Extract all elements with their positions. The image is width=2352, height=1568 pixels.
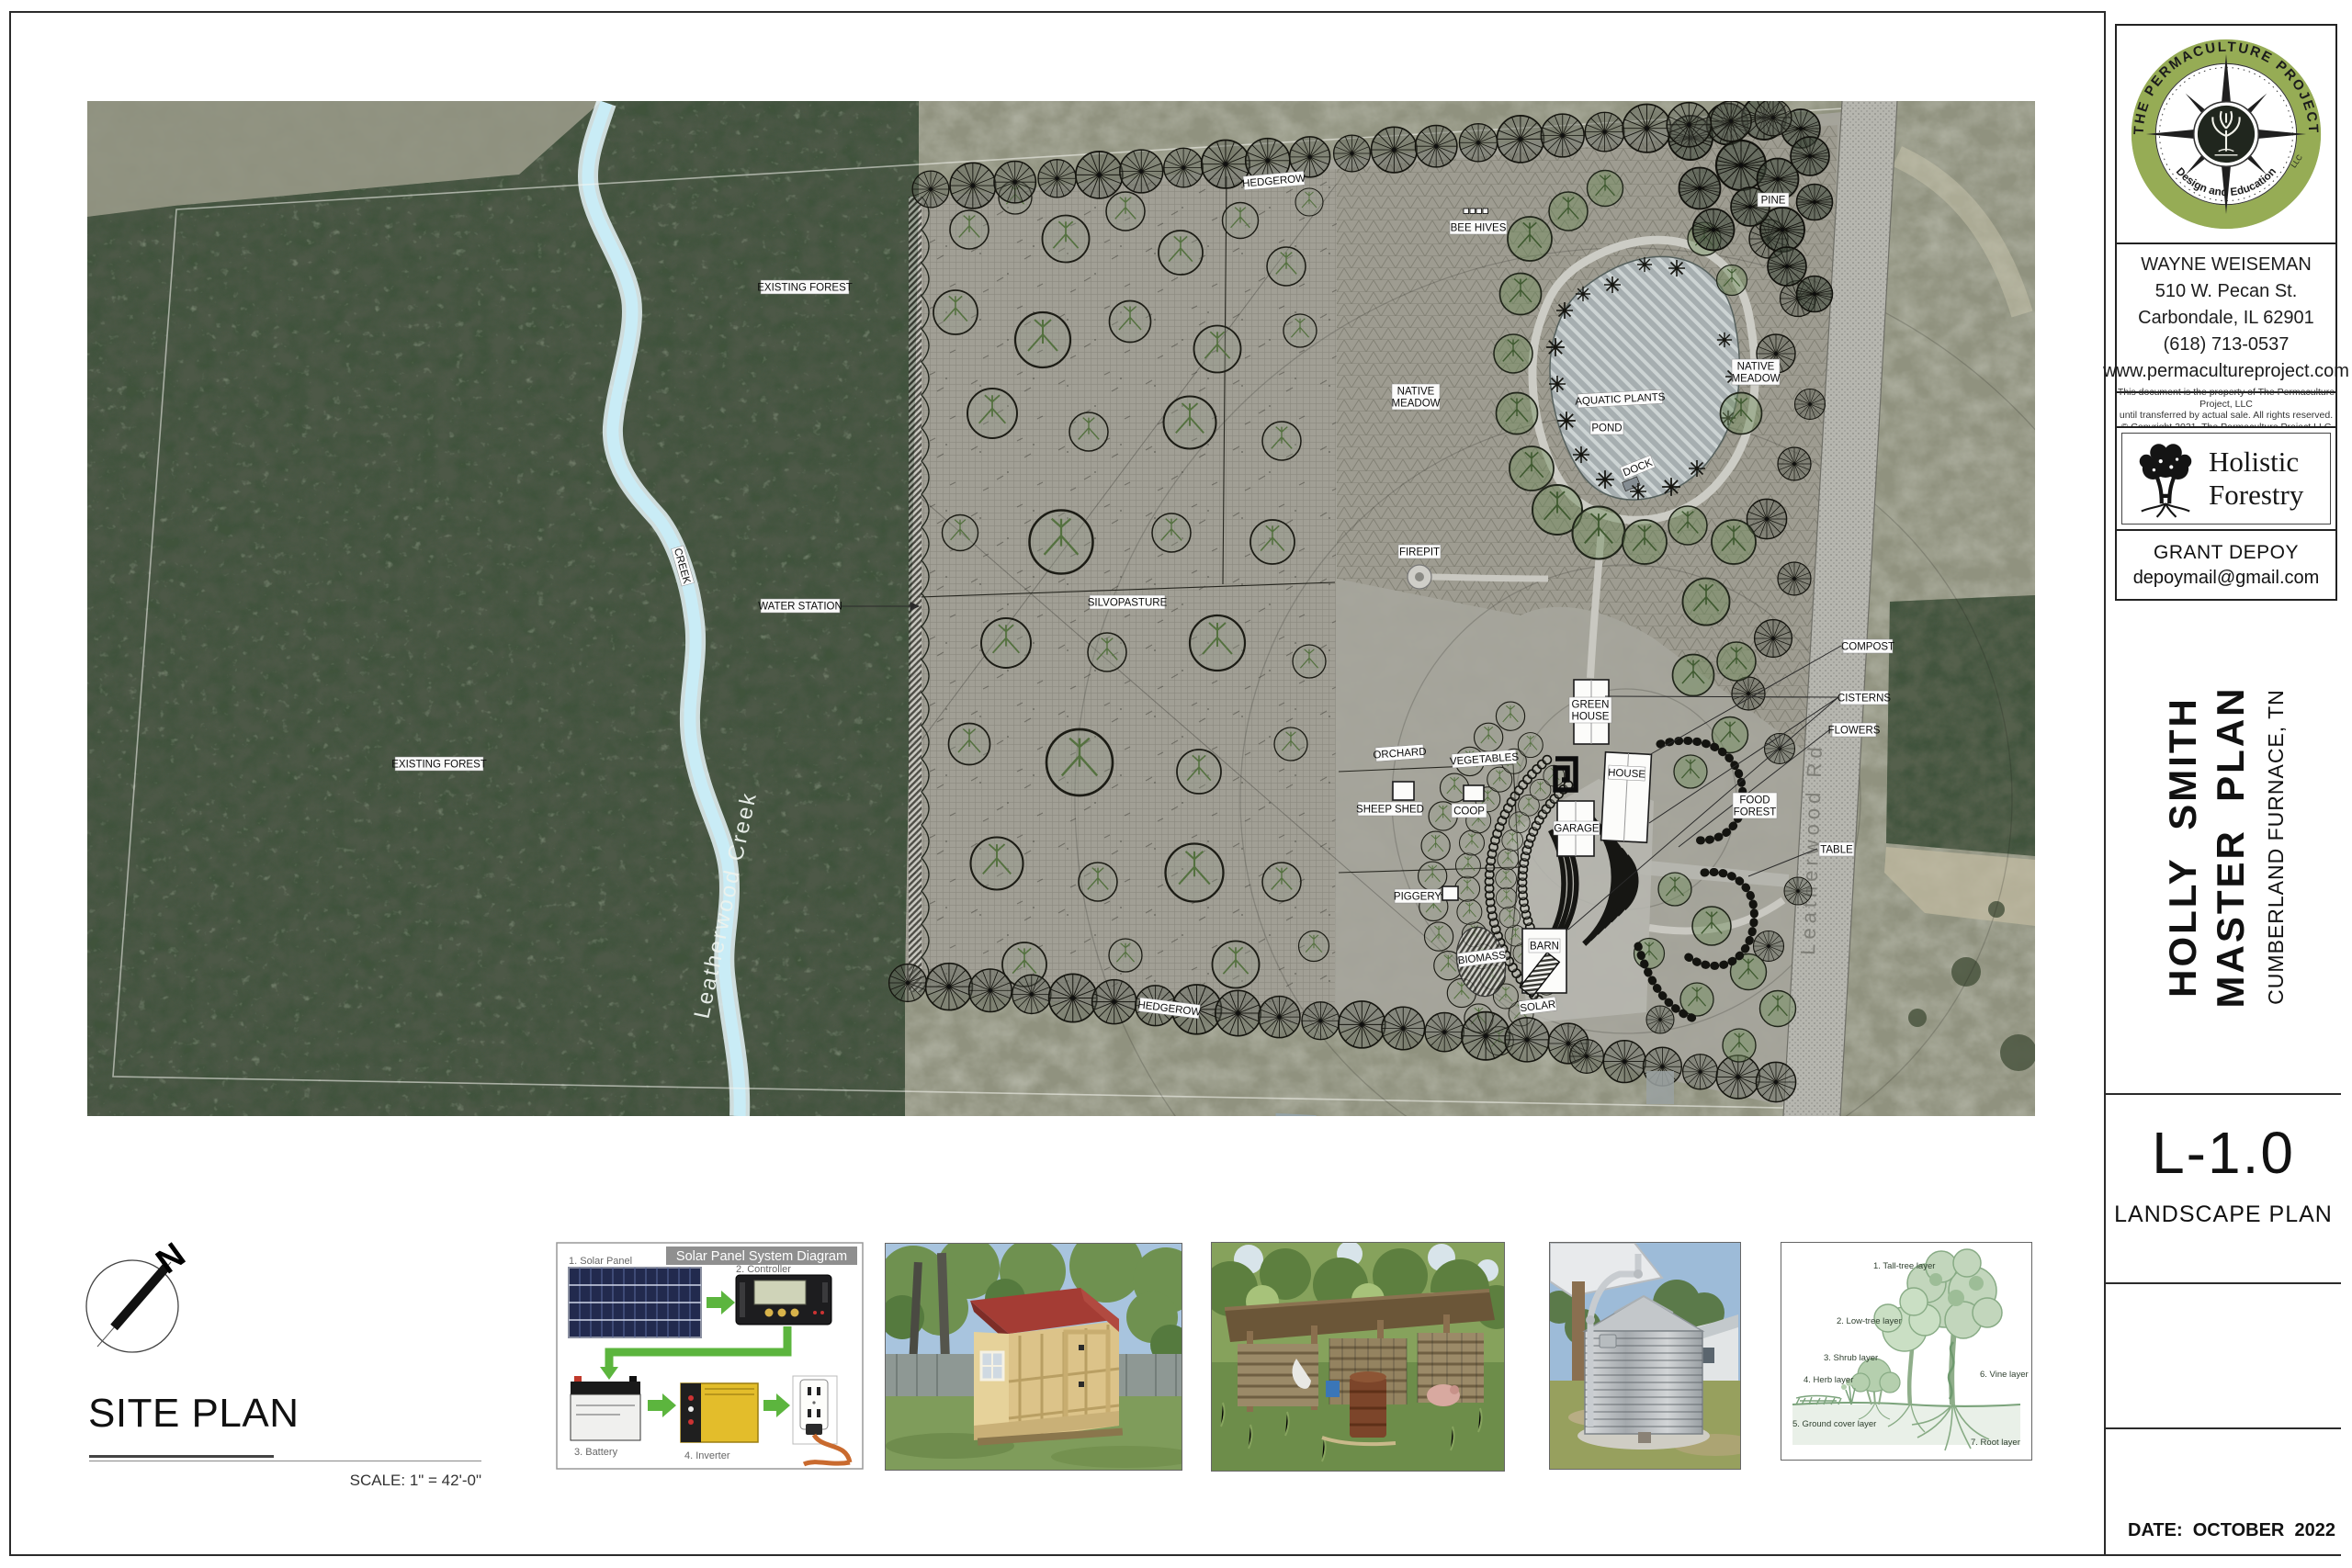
svg-text:FOOD: FOOD bbox=[1739, 795, 1770, 807]
svg-text:FLOWERS: FLOWERS bbox=[1828, 726, 1881, 737]
svg-text:BARN: BARN bbox=[1530, 942, 1559, 953]
date-scale-block: DATE: OCTOBER 2022 SCALE: AS NOTED bbox=[2128, 1464, 2335, 1568]
label-pine: PINE bbox=[1758, 193, 1789, 207]
photo-pig-shelter bbox=[1211, 1242, 1505, 1472]
permaculture-project-logo: THE PERMACULTURE PROJECT LLC · Design an… bbox=[2128, 29, 2324, 239]
svg-text:PIGGERY: PIGGERY bbox=[1394, 892, 1442, 903]
solar-panel-image bbox=[569, 1268, 701, 1337]
sheep-shed-footprint bbox=[1393, 782, 1414, 800]
label-barn: BARN bbox=[1529, 939, 1560, 953]
rusty-barrel bbox=[1350, 1371, 1386, 1438]
label-existing-forest-1: EXISTING FOREST bbox=[757, 280, 853, 294]
label-existing-forest-2: EXISTING FOREST bbox=[391, 757, 487, 771]
coop-footprint bbox=[1464, 785, 1484, 801]
sheet-number-box: L-1.0 LANDSCAPE PLAN bbox=[2106, 1095, 2341, 1282]
svg-text:6. Vine layer: 6. Vine layer bbox=[1980, 1370, 2029, 1380]
photo-rain-cistern bbox=[1549, 1242, 1741, 1470]
svg-text:BEE HIVES: BEE HIVES bbox=[1451, 223, 1507, 234]
designer-name: WAYNE WEISEMAN bbox=[2141, 252, 2312, 278]
project-title-line-2: MASTER PLAN bbox=[2207, 686, 2255, 1009]
label-cisterns: CISTERNS bbox=[1837, 691, 1891, 705]
item-3-label: 3. Battery bbox=[574, 1447, 618, 1458]
label-house: HOUSE bbox=[1608, 765, 1646, 781]
sheet-title: LANDSCAPE PLAN bbox=[2114, 1201, 2333, 1228]
firepit bbox=[1408, 565, 1431, 589]
svg-text:GARAGE: GARAGE bbox=[1554, 824, 1600, 835]
forester-contact-box: GRANT DEPOY depoymail@gmail.com bbox=[2115, 529, 2337, 601]
label-bee-hives: BEE HIVES bbox=[1450, 220, 1507, 234]
forester-email: depoymail@gmail.com bbox=[2133, 568, 2320, 589]
svg-text:NATIVE: NATIVE bbox=[1737, 362, 1775, 373]
svg-text:3. Shrub layer: 3. Shrub layer bbox=[1824, 1353, 1878, 1363]
sheet-date: DATE: OCTOBER 2022 bbox=[2128, 1517, 2335, 1544]
heading-underline-thin bbox=[89, 1461, 481, 1461]
svg-text:5. Ground cover layer: 5. Ground cover layer bbox=[1792, 1419, 1876, 1429]
svg-text:MEADOW: MEADOW bbox=[1391, 399, 1440, 410]
battery-image bbox=[571, 1376, 640, 1440]
project-location: CUMBERLAND FURNACE, TN bbox=[2264, 689, 2289, 1005]
coop-structure bbox=[970, 1288, 1123, 1446]
svg-text:MEADOW: MEADOW bbox=[1731, 374, 1780, 385]
label-native-meadow-2: NATIVEMEADOW bbox=[1731, 359, 1780, 385]
diagram-title: Solar Panel System Diagram bbox=[676, 1249, 847, 1264]
svg-text:SILVOPASTURE: SILVOPASTURE bbox=[1088, 598, 1168, 609]
svg-text:4. Herb layer: 4. Herb layer bbox=[1804, 1375, 1853, 1385]
holistic-forestry-tree-icon bbox=[2131, 438, 2199, 519]
svg-text:GREEN: GREEN bbox=[1572, 700, 1610, 711]
designer-website: www.permacultureproject.com bbox=[2103, 358, 2349, 385]
item-2-label: 2. Controller bbox=[736, 1264, 791, 1275]
svg-text:COOP: COOP bbox=[1453, 807, 1485, 818]
svg-text:HOUSE: HOUSE bbox=[1608, 767, 1646, 780]
holistic-forestry-box: Holistic Forestry bbox=[2115, 426, 2337, 531]
item-1-label: 1. Solar Panel bbox=[569, 1256, 632, 1267]
label-coop: COOP bbox=[1452, 804, 1487, 818]
project-title-line-1: HOLLY SMITH bbox=[2159, 696, 2207, 998]
site-plan-map: Leatherwood Rd bbox=[87, 101, 2035, 1116]
label-piggery: PIGGERY bbox=[1394, 889, 1442, 903]
svg-text:2. Low-tree layer: 2. Low-tree layer bbox=[1837, 1316, 1902, 1326]
label-food-forest: FOODFOREST bbox=[1733, 793, 1777, 818]
label-silvopasture: SILVOPASTURE bbox=[1088, 595, 1168, 609]
heading-underline bbox=[89, 1455, 274, 1458]
svg-text:WATER STATION: WATER STATION bbox=[758, 602, 842, 613]
svg-text:EXISTING FOREST: EXISTING FOREST bbox=[391, 760, 487, 771]
drawing-sheet: Leatherwood Rd bbox=[0, 0, 2352, 1568]
svg-text:POND: POND bbox=[1591, 423, 1622, 434]
piggery-footprint bbox=[1442, 886, 1458, 900]
item-4-label: 4. Inverter bbox=[684, 1450, 730, 1461]
controller-image bbox=[736, 1275, 831, 1325]
svg-text:1. Tall-tree layer: 1. Tall-tree layer bbox=[1873, 1261, 1935, 1271]
label-sheep-shed: SHEEP SHED bbox=[1356, 802, 1424, 816]
site-plan-heading: SITE PLAN bbox=[88, 1391, 299, 1437]
designer-address-1: 510 W. Pecan St. bbox=[2155, 278, 2298, 305]
svg-text:FOREST: FOREST bbox=[1734, 807, 1777, 818]
label-native-meadow-1: NATIVEMEADOW bbox=[1391, 384, 1440, 410]
label-firepit: FIREPIT bbox=[1398, 545, 1441, 558]
label-green-house: GREENHOUSE bbox=[1569, 697, 1611, 723]
svg-text:NATIVE: NATIVE bbox=[1397, 387, 1435, 398]
designer-address-2: Carbondale, IL 62901 bbox=[2138, 305, 2314, 332]
photo-chicken-coop bbox=[885, 1243, 1182, 1471]
svg-text:EXISTING FOREST: EXISTING FOREST bbox=[757, 283, 853, 294]
permaculture-project-logo-box: THE PERMACULTURE PROJECT LLC · Design an… bbox=[2115, 24, 2337, 244]
site-plan-scale: SCALE: 1" = 42'-0" bbox=[230, 1472, 481, 1490]
forest-edge-buffer bbox=[909, 197, 922, 992]
label-pond: POND bbox=[1590, 421, 1623, 434]
svg-text:FIREPIT: FIREPIT bbox=[1399, 547, 1440, 558]
svg-text:HOUSE: HOUSE bbox=[1572, 712, 1610, 723]
svg-text:COMPOST: COMPOST bbox=[1841, 642, 1894, 653]
svg-text:CISTERNS: CISTERNS bbox=[1837, 694, 1891, 705]
svg-text:PINE: PINE bbox=[1761, 196, 1786, 207]
project-title-area: HOLLY SMITH MASTER PLAN CUMBERLAND FURNA… bbox=[2106, 603, 2341, 1091]
forester-name: GRANT DEPOY bbox=[2154, 542, 2299, 564]
sheet-number: L-1.0 bbox=[2152, 1119, 2295, 1187]
inverter-image bbox=[681, 1383, 758, 1442]
designer-contact-box: WAYNE WEISEMAN 510 W. Pecan St. Carbonda… bbox=[2115, 243, 2337, 393]
svg-text:7. Root layer: 7. Root layer bbox=[1971, 1438, 2020, 1448]
label-flowers: FLOWERS bbox=[1828, 723, 1881, 737]
svg-text:SHEEP SHED: SHEEP SHED bbox=[1356, 805, 1424, 816]
solar-system-diagram: Solar Panel System Diagram 1. Solar Pane… bbox=[556, 1242, 864, 1470]
copyright-box: This document is the property of The Per… bbox=[2115, 391, 2337, 428]
label-compost: COMPOST bbox=[1841, 639, 1894, 653]
forest-layers-diagram: 1. Tall-tree layer 2. Low-tree layer 3. … bbox=[1781, 1242, 2032, 1461]
north-arrow: N bbox=[75, 1240, 222, 1364]
label-garage: GARAGE bbox=[1554, 821, 1600, 835]
designer-phone: (618) 713-0537 bbox=[2164, 332, 2290, 358]
label-water-station: WATER STATION bbox=[758, 599, 842, 613]
svg-text:TABLE: TABLE bbox=[1820, 845, 1853, 856]
label-table: TABLE bbox=[1819, 842, 1854, 856]
